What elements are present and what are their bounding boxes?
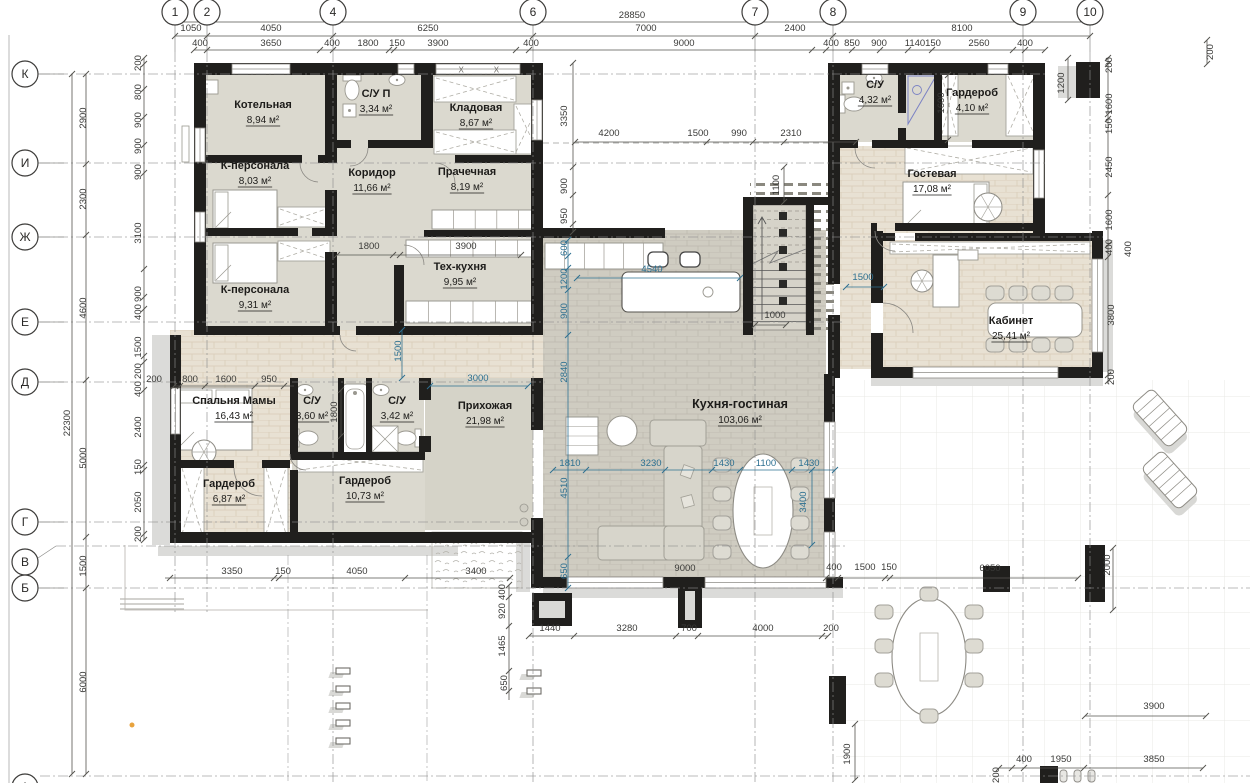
- dimension-text: 1800: [358, 241, 379, 252]
- wardrobe: [264, 466, 288, 536]
- wall: [290, 452, 425, 460]
- dimension-text: 150: [133, 459, 144, 475]
- step-bar: [336, 720, 350, 726]
- room-area: 8,03 м²: [239, 176, 272, 187]
- room-area: 21,98 м²: [466, 416, 505, 427]
- dimension-text: 1440: [539, 623, 560, 634]
- wall: [424, 230, 543, 237]
- dimension-text: 1140: [905, 38, 925, 49]
- porch-column-core: [539, 601, 565, 618]
- shadow: [871, 378, 1103, 386]
- terrace: [836, 380, 1250, 783]
- room-name: Коридор: [348, 167, 396, 179]
- dimension-text: 950: [261, 374, 277, 385]
- grid-bubble-label: 2: [204, 5, 211, 19]
- chair: [791, 545, 809, 559]
- grid-bubble-label: 6: [530, 5, 537, 19]
- wall: [898, 128, 906, 140]
- room-area: 4,10 м²: [956, 103, 989, 114]
- wall: [455, 155, 543, 163]
- grid-bubble-label: 10: [1083, 5, 1097, 19]
- bed-pillow: [215, 245, 228, 281]
- wall: [898, 63, 906, 113]
- wall: [194, 63, 206, 335]
- wall: [337, 140, 351, 148]
- wardrobe: [180, 466, 204, 536]
- dimension-text: 2310: [780, 128, 801, 139]
- wall: [178, 460, 234, 468]
- wall: [743, 197, 753, 335]
- stair-rail-post: [779, 280, 787, 288]
- room-area: 8,19 м²: [451, 182, 484, 193]
- room-name: Спальня Мамы: [192, 395, 276, 407]
- toilet-bowl: [298, 431, 318, 445]
- dimension-text: 400: [826, 562, 842, 573]
- grid-bubble-label: И: [21, 156, 30, 170]
- room-area: 8,67 м²: [460, 118, 493, 129]
- room-name: Тех-кухня: [434, 261, 487, 273]
- dimension-text: 900: [133, 112, 144, 128]
- wall: [1092, 352, 1103, 378]
- dimension-text: 7000: [635, 23, 656, 34]
- dimension-text: 1600: [1104, 93, 1115, 114]
- dimension-text: 1500: [852, 272, 873, 283]
- room-name: Прихожая: [458, 400, 512, 412]
- wall: [543, 228, 665, 238]
- wall: [170, 532, 543, 543]
- bed-pillow: [215, 192, 228, 228]
- dimension-text: 920: [497, 603, 508, 619]
- dimension-text: 3100: [133, 222, 144, 243]
- grid-bubble-label: Г: [22, 515, 29, 529]
- wall: [290, 470, 298, 532]
- dimension-text: 2840: [559, 361, 570, 382]
- wall: [368, 140, 428, 148]
- toilet-bowl: [396, 431, 416, 445]
- grid-bubble-label: 9: [1020, 5, 1027, 19]
- dimension-text: 900: [559, 178, 570, 194]
- dimension-text: 200: [133, 526, 144, 542]
- chair: [965, 639, 983, 653]
- dimension-text: 2050: [133, 491, 144, 512]
- dimension-text: 400: [133, 304, 144, 320]
- room-area: 10,73 м²: [346, 491, 385, 502]
- grid-bubble-label: Ж: [19, 230, 30, 244]
- dimension-text: 6000: [78, 671, 89, 692]
- sofa-pillow: [681, 495, 694, 508]
- dimension-text: 4540: [641, 264, 662, 275]
- dimension-text: 1050: [180, 23, 201, 34]
- dimension-text: 4600: [78, 297, 89, 318]
- wall: [872, 140, 948, 148]
- dimension-text: 22300: [62, 410, 73, 436]
- wardrobe: [434, 76, 516, 102]
- chair: [875, 605, 893, 619]
- dimension-text: 900: [133, 138, 144, 154]
- grid-bubble-label: К: [22, 67, 29, 81]
- dimension-text: 1100: [771, 175, 782, 195]
- wall: [325, 252, 337, 326]
- dimension-text: 3900: [1143, 701, 1164, 712]
- chair: [713, 487, 731, 501]
- stool: [680, 252, 700, 267]
- dimension-text: 200: [133, 55, 144, 71]
- grid-bubble-label: В: [21, 555, 29, 569]
- wall: [194, 228, 298, 236]
- grid-bubble-label: 7: [752, 5, 759, 19]
- dimension-text: 1430: [798, 458, 819, 469]
- wall: [871, 367, 913, 378]
- dimension-text: 28850: [619, 10, 645, 21]
- room-area: 6,87 м²: [213, 494, 246, 505]
- dimension-text: 1500: [393, 340, 404, 361]
- wardrobe: [434, 130, 516, 154]
- dimension-text: 6250: [417, 23, 438, 34]
- grid-bubble-label: 1: [172, 5, 179, 19]
- dimension-text: 800: [182, 374, 198, 385]
- room-area: 3,34 м²: [360, 104, 393, 115]
- dimension-text: 150: [881, 562, 897, 573]
- grid-bubble-label: Б: [21, 581, 29, 595]
- chair: [1055, 286, 1073, 300]
- room-area: 16,43 м²: [215, 411, 254, 422]
- chair: [920, 587, 938, 601]
- dimension-text: 900: [133, 286, 144, 302]
- counter: [432, 210, 540, 229]
- chair: [965, 673, 983, 687]
- chair: [875, 639, 893, 653]
- outdoor-table: [892, 598, 966, 716]
- step-bar: [336, 668, 350, 674]
- shadow: [158, 546, 458, 556]
- wall: [806, 197, 814, 335]
- dimension-text: 2400: [784, 23, 805, 34]
- room-name: Гардероб: [946, 87, 998, 99]
- grid-bubble-label: Д: [21, 375, 29, 389]
- dimension-text: 1950: [1050, 754, 1071, 765]
- room-name: С/У: [866, 79, 884, 91]
- step-bar: [336, 738, 350, 744]
- room-floor: [840, 233, 871, 369]
- room-name: С/У: [388, 395, 406, 407]
- wall: [871, 223, 877, 231]
- shelf: [958, 250, 978, 260]
- dimension-text: 4050: [346, 566, 367, 577]
- room-area: 103,06 м²: [718, 415, 762, 426]
- dimension-text: 4200: [598, 128, 619, 139]
- dimension-text: 3650: [260, 38, 281, 49]
- chair: [713, 545, 731, 559]
- grid-bubble-label: Е: [21, 315, 29, 329]
- window-sash-mark: Х: [459, 66, 465, 75]
- chair: [1009, 286, 1027, 300]
- dimension-text: 6050: [979, 563, 1000, 574]
- grid-bubble-label: 8: [830, 5, 837, 19]
- dimension-text: 1200: [1056, 72, 1067, 93]
- dimension-text: 700: [681, 623, 697, 634]
- dimension-text: 400: [324, 38, 340, 49]
- dimension-text: 900: [133, 164, 144, 180]
- porch-column-core: [685, 591, 695, 620]
- wardrobe: [278, 241, 330, 261]
- wall: [871, 231, 883, 303]
- dimension-text: 9000: [673, 38, 694, 49]
- washer-dot: [847, 87, 850, 90]
- dimension-text: 200: [133, 363, 144, 379]
- dimension-text: 200: [146, 374, 162, 385]
- room-name: Гардероб: [339, 475, 391, 487]
- dimension-text: 1900: [842, 743, 853, 764]
- sink-drain: [304, 389, 306, 391]
- washer-dot: [348, 109, 351, 112]
- dining-table: [733, 454, 793, 568]
- room-area: 11,66 м²: [353, 183, 391, 194]
- dimension-text: 1100: [756, 458, 776, 469]
- dimension-text: 1430: [713, 458, 734, 469]
- bathtub-faucet: [353, 391, 357, 395]
- dimension-text: 900: [559, 303, 570, 319]
- shadow: [152, 335, 170, 545]
- wall: [394, 265, 404, 326]
- room-name: Кладовая: [450, 102, 503, 114]
- wall: [325, 190, 337, 228]
- step-bar: [336, 686, 350, 692]
- floor-plan-svg: ХХ28850105040506250700024008100400365040…: [0, 0, 1250, 783]
- dimension-text: 1600: [1104, 209, 1115, 230]
- dimension-text: 3900: [427, 38, 448, 49]
- dimension-text: 400: [192, 38, 208, 49]
- room-name: Кухня-гостиная: [692, 397, 788, 411]
- dimension-text: 150: [275, 566, 291, 577]
- stair-rail-post: [779, 297, 787, 305]
- grid-bubble-label: 4: [330, 5, 337, 19]
- dimension-text: 2900: [78, 107, 89, 128]
- wall: [356, 326, 543, 335]
- chair: [965, 605, 983, 619]
- room-area: 17,08 м²: [913, 184, 952, 195]
- dimension-text: 900: [871, 38, 887, 49]
- dimension-text: 200: [1205, 44, 1216, 60]
- dimension-text: 400: [1017, 38, 1033, 49]
- dimension-text: 4050: [260, 23, 281, 34]
- dimension-text: 150: [1104, 118, 1115, 134]
- dimension-text: 150: [925, 38, 941, 49]
- room-name: С/У П: [362, 88, 391, 100]
- room-name: Прачечная: [438, 166, 496, 178]
- dimension-text: 8100: [951, 23, 972, 34]
- room-area: 3,42 м²: [381, 411, 414, 422]
- room-name: Гардероб: [203, 478, 255, 490]
- dimension-text: 1500: [687, 128, 708, 139]
- wall: [170, 335, 181, 543]
- wall: [826, 577, 843, 588]
- armchair: [607, 416, 637, 446]
- dimension-text: 400: [1016, 754, 1032, 765]
- room-area: 3,60 м²: [296, 411, 329, 422]
- chair: [1032, 338, 1050, 352]
- step-bar: [527, 670, 541, 676]
- chair: [986, 286, 1004, 300]
- wall: [840, 140, 858, 148]
- radiator: [182, 126, 189, 162]
- dimension-text: 2450: [1104, 156, 1115, 177]
- stair-rail-post: [779, 246, 787, 254]
- chair: [1055, 338, 1073, 352]
- terrace-tiles: [836, 380, 1250, 783]
- dimension-text: 400: [497, 584, 508, 600]
- dimension-text: 990: [731, 128, 747, 139]
- stair-rail-post: [779, 263, 787, 271]
- dimension-text: 650: [559, 563, 570, 579]
- dimension-text: 5000: [78, 447, 89, 468]
- wall: [895, 223, 1033, 231]
- wall: [366, 378, 372, 452]
- room-name: К-персонала: [221, 284, 290, 296]
- dimension-text: 3850: [1143, 754, 1164, 765]
- dimension-text: 400: [823, 38, 839, 49]
- dimension-text: 3800: [1106, 304, 1117, 325]
- step-bar: [336, 703, 350, 709]
- dimension-text: 1800: [357, 38, 378, 49]
- wall: [325, 63, 337, 163]
- dimension-text: 1500: [78, 555, 89, 576]
- dimension-text: 400: [523, 38, 539, 49]
- dimension-text: 3000: [467, 373, 488, 384]
- sink-drain: [380, 389, 382, 391]
- dimension-text: 600: [559, 240, 570, 256]
- coat-hook: [520, 504, 528, 512]
- dimension-text: 1800: [329, 401, 340, 422]
- dimension-text: 4510: [559, 477, 570, 498]
- wall: [828, 315, 840, 378]
- wall: [194, 326, 340, 335]
- dimension-text: 1200: [559, 268, 570, 289]
- dimension-text: 2560: [968, 38, 989, 49]
- step-bar: [527, 688, 541, 694]
- dimension-text: 400: [133, 381, 144, 397]
- chair: [1032, 286, 1050, 300]
- desk: [933, 255, 959, 307]
- dimension-text: 3230: [640, 458, 661, 469]
- dimension-text: 3350: [559, 105, 570, 126]
- dimension-text: 1500: [133, 336, 144, 357]
- dimension-text: 3280: [616, 623, 637, 634]
- wall: [419, 378, 431, 400]
- dimension-text: 200: [823, 623, 839, 634]
- chair: [875, 673, 893, 687]
- orange-dot: [130, 723, 135, 728]
- dimension-text: 1600: [215, 374, 236, 385]
- dimension-text: 150: [389, 38, 405, 49]
- dimension-text: 3350: [221, 566, 242, 577]
- wall: [828, 228, 840, 284]
- room-name: К-персонала: [221, 160, 290, 172]
- dimension-text: 400: [1104, 239, 1115, 255]
- wall: [419, 436, 431, 452]
- dimension-text: 800: [133, 84, 144, 100]
- toilet-bowl: [345, 80, 359, 100]
- floor-plan-canvas: ХХ28850105040506250700024008100400365040…: [0, 0, 1250, 783]
- window-sash-mark: Х: [494, 66, 500, 75]
- room-name: Котельная: [234, 99, 292, 111]
- dimension-text: 3900: [455, 241, 476, 252]
- wall: [972, 140, 1040, 148]
- dimension-text: 2300: [78, 188, 89, 209]
- wall: [262, 460, 290, 468]
- wall: [828, 63, 840, 233]
- chair: [713, 516, 731, 530]
- dimension-text: 200: [991, 767, 1002, 783]
- column: [1076, 62, 1100, 98]
- stair-rail-post: [779, 229, 787, 237]
- dimension-text: 1000: [764, 310, 785, 321]
- dimension-text: 850: [844, 38, 860, 49]
- room-area: 9,95 м²: [444, 277, 477, 288]
- room-area: 4,32 м²: [859, 95, 892, 106]
- chair: [791, 516, 809, 530]
- wall: [743, 197, 834, 205]
- dimension-text: 1465: [497, 635, 508, 656]
- wall: [318, 155, 337, 163]
- dimension-text: 950: [559, 208, 570, 224]
- dimension-text: 3400: [465, 566, 486, 577]
- dimension-text: 1810: [559, 458, 580, 469]
- dimension-text: 1500: [854, 562, 875, 573]
- dimension-text: 400: [1123, 241, 1134, 257]
- room-area: 9,31 м²: [239, 300, 272, 311]
- sofa: [650, 420, 706, 446]
- sofa: [664, 526, 704, 560]
- dimension-text: 9000: [674, 563, 695, 574]
- column: [1040, 766, 1058, 783]
- dimension-text: 2400: [133, 416, 144, 437]
- stairs: [750, 183, 834, 335]
- coat-hook: [520, 518, 528, 526]
- stair-rail-post: [779, 212, 787, 220]
- column: [829, 676, 846, 724]
- room-area: 8,94 м²: [247, 115, 280, 126]
- room-area: 25,41 м²: [992, 331, 1031, 342]
- room-name: Гостевая: [907, 168, 956, 180]
- dimension-text: 3400: [798, 491, 809, 512]
- room-name: Кабинет: [989, 315, 1034, 327]
- dimension-text: 200: [1106, 369, 1117, 385]
- room-name: С/У: [303, 395, 321, 407]
- dimension-text: 2000: [1102, 554, 1113, 575]
- chair: [920, 709, 938, 723]
- wall: [421, 63, 433, 148]
- sink-drain: [396, 79, 398, 81]
- dimension-text: 4000: [752, 623, 773, 634]
- dimension-text: 650: [499, 675, 510, 691]
- dimension-text: 200: [1104, 57, 1115, 73]
